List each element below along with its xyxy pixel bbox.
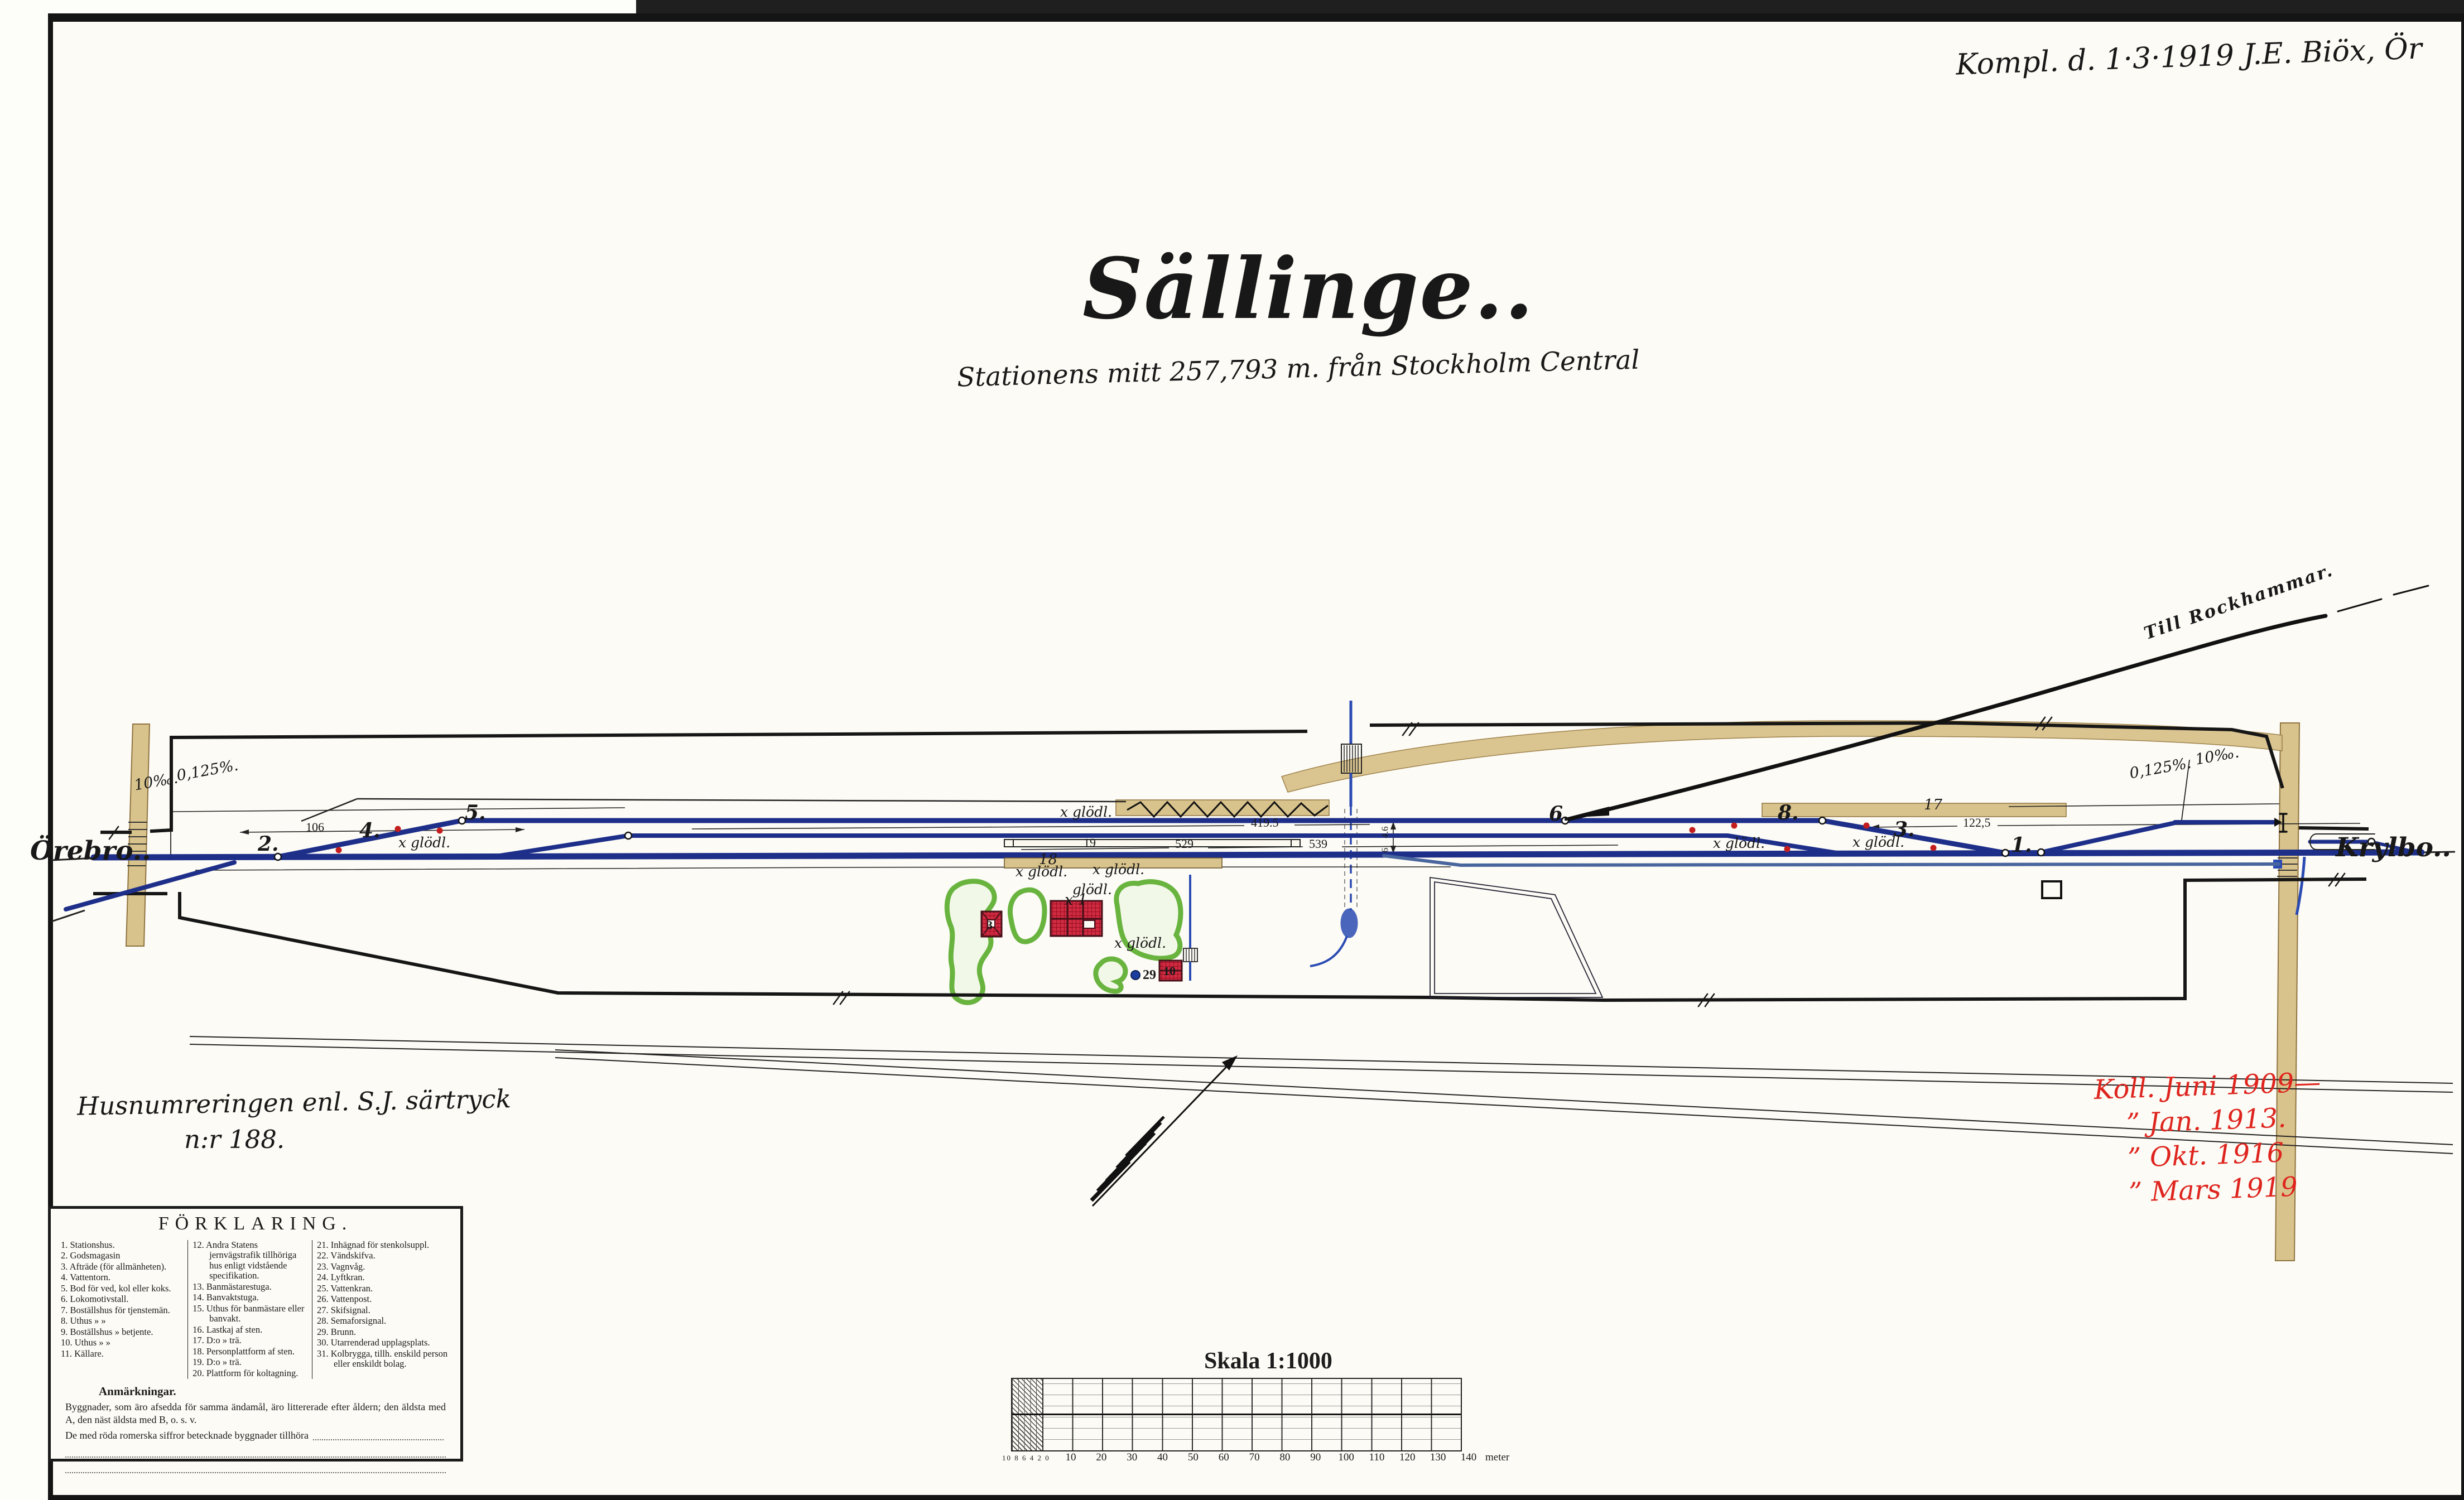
legend-item: 17. D:o » trä. (192, 1335, 307, 1345)
legend-item: 12. Andra Statens jernvägstrafik tillhör… (192, 1240, 307, 1281)
legend-item: 10. Uthus » » (61, 1338, 183, 1348)
distance-label: 106 (306, 820, 324, 835)
legend-item: 6. Lokomotivstall. (61, 1294, 183, 1304)
lamp-annotation: x glödl. (1060, 804, 1112, 820)
scale-tick-label: 90 (1305, 1451, 1327, 1464)
legend-item: 23. Vagnvåg. (317, 1262, 450, 1272)
legend-item: 14. Banvaktstuga. (192, 1292, 307, 1303)
destination-krylbo: Krylbo.. (2336, 832, 2451, 863)
dotted-blank-line (65, 1458, 446, 1473)
legend-item: 15. Uthus för banmästare eller banvakt. (192, 1304, 307, 1324)
quay-number: 17 (1924, 797, 1942, 813)
switch-number: 2. (258, 832, 279, 856)
scale-tick-label: 50 (1182, 1451, 1204, 1464)
well-number: 29 (1143, 968, 1156, 983)
page-title: Sällinge.. (1082, 240, 1428, 338)
dotted-fill-line (313, 1429, 444, 1440)
boundary-layer (95, 717, 2367, 1006)
building-number-shed: 10 (1163, 964, 1176, 978)
house-numbering-note-line2: n:r 188. (184, 1125, 285, 1154)
legend-item: 2. Godsmagasin (61, 1251, 183, 1261)
scale-unit: meter (1485, 1451, 1509, 1464)
legend-item: 4. Vattentorn. (61, 1272, 183, 1282)
legend-column-3: 21. Inhägnad för stenkolsuppl.22. Vändsk… (312, 1240, 455, 1379)
roads-layer (126, 721, 2299, 1261)
legend-item: 24. Lyftkran. (317, 1272, 450, 1282)
scale-ruler-midline (1012, 1414, 1461, 1415)
revision-date-line: ” Mars 1919 (2128, 1169, 2325, 1210)
scale-tick-label: 60 (1212, 1451, 1235, 1464)
legend-item: 16. Lastkaj af sten. (192, 1325, 307, 1335)
switch-number: 4. (359, 819, 381, 842)
scale-tick-label: 110 (1365, 1451, 1388, 1464)
switch-number: 3. (1894, 818, 1915, 841)
scale-tick-label: 40 (1152, 1451, 1174, 1464)
lamp-annotation: x glödl. (1093, 861, 1144, 877)
legend-column-2: 12. Andra Statens jernvägstrafik tillhör… (187, 1240, 312, 1379)
building-number-privy: 3 (986, 918, 993, 933)
remarks-paragraph-2-text: De med röda romerska siffror betecknade … (65, 1429, 309, 1442)
legend-item: 3. Afträde (för allmänheten). (61, 1262, 183, 1272)
distance-label: 529 (1175, 837, 1193, 851)
scale-tick-label: 20 (1090, 1451, 1113, 1464)
legend-box: FÖRKLARING. 1. Stationshus.2. Godsmagasi… (48, 1206, 463, 1462)
legend-item: 7. Boställshus för tjenstemän. (61, 1305, 183, 1315)
scale-ruler (1011, 1378, 1462, 1451)
legend-item: 13. Banmästarestuga. (192, 1282, 307, 1292)
lamp-annotation: x glödl. (1713, 835, 1765, 851)
distance-label: 419.5 (1251, 816, 1279, 830)
distance-label: 539 (1309, 837, 1327, 851)
distance-label: 122,5 (1963, 816, 1991, 830)
legend-item: 21. Inhägnad för stenkolsuppl. (317, 1240, 450, 1250)
scale-tick-label: 80 (1274, 1451, 1296, 1464)
legend-item: 1. Stationshus. (61, 1240, 183, 1250)
legend-item: 18. Personplattform af sten. (192, 1347, 307, 1357)
scale-title: Skala 1:1000 (1204, 1348, 1332, 1374)
scale-tick-label: 30 (1121, 1451, 1143, 1464)
legend-item: 22. Vändskifva. (317, 1251, 450, 1261)
remarks-heading: Anmärkningar. (99, 1385, 446, 1398)
scale-tick-label: 100 (1335, 1451, 1358, 1464)
legend-columns: 1. Stationshus.2. Godsmagasin3. Afträde … (56, 1240, 455, 1379)
remarks-paragraph-2: De med röda romerska siffror betecknade … (65, 1429, 446, 1442)
destination-orebro: Örebro.. (30, 836, 151, 866)
platform-wood-number: 19 (1084, 836, 1096, 850)
legend-item: 28. Semaforsignal. (317, 1316, 450, 1326)
scale-tick-label: 120 (1396, 1451, 1418, 1464)
scale-tick-label: 10 (1060, 1451, 1082, 1464)
legend-item: 8. Uthus » » (61, 1316, 183, 1326)
legend-column-1: 1. Stationshus.2. Godsmagasin3. Afträde … (56, 1240, 187, 1379)
switch-number: 6. (1549, 802, 1570, 826)
legend-item: 5. Bod för ved, kol eller koks. (61, 1284, 183, 1294)
scale-tick-label: 70 (1243, 1451, 1265, 1464)
dimension-label: 6 (1379, 848, 1390, 853)
legend-item: 25. Vattenkran. (317, 1284, 450, 1294)
legend-item: 27. Skifsignal. (317, 1305, 450, 1315)
legend-item: 19. D:o » trä. (192, 1357, 307, 1367)
station-house-number: x 1 (1065, 891, 1087, 909)
scale-tick-label: 130 (1427, 1451, 1449, 1464)
legend-title: FÖRKLARING. (51, 1213, 460, 1234)
dotted-blank-line (65, 1442, 446, 1458)
switch-number: 1. (2011, 833, 2032, 857)
scale-ticks: 102030405060708090100110120130140 (1060, 1451, 1480, 1464)
scale-subticks: 10 8 6 4 2 0 (1002, 1454, 1050, 1463)
legend-item: 31. Kolbrygga, tillh. enskild person ell… (317, 1349, 450, 1369)
revision-dates-note: Koll. Juni 1909—” Jan. 1913.” Okt. 1916”… (2094, 1065, 2325, 1211)
legend-remarks: Anmärkningar. Byggnader, som äro afsedda… (65, 1385, 446, 1442)
switch-number: 8. (1778, 801, 1799, 824)
platform-stone-number: 18 (1039, 851, 1057, 868)
dimension-label: 4.6 (1380, 826, 1391, 838)
legend-item: 26. Vattenpost. (317, 1294, 450, 1304)
switch-number: 5. (465, 801, 486, 824)
legend-item: 30. Utarrenderad upplagsplats. (317, 1338, 450, 1348)
lamp-annotation: x glödl. (398, 835, 450, 851)
legend-item: 20. Plattform för koltagning. (192, 1368, 307, 1378)
legend-item: 11. Källare. (61, 1349, 183, 1359)
tracks-layer (66, 586, 2428, 909)
drawing-sheet: Kompl. d. 1·3·1919 J.E. Biöx, Ör Sälling… (0, 0, 2464, 1500)
scale-tick-label: 140 (1457, 1451, 1480, 1464)
remarks-paragraph-1: Byggnader, som äro afsedda för samma änd… (65, 1401, 446, 1427)
lamp-annotation: x glödl. (1114, 935, 1166, 951)
legend-item: 9. Boställshus » betjente. (61, 1327, 183, 1337)
legend-item: 29. Brunn. (317, 1327, 450, 1337)
